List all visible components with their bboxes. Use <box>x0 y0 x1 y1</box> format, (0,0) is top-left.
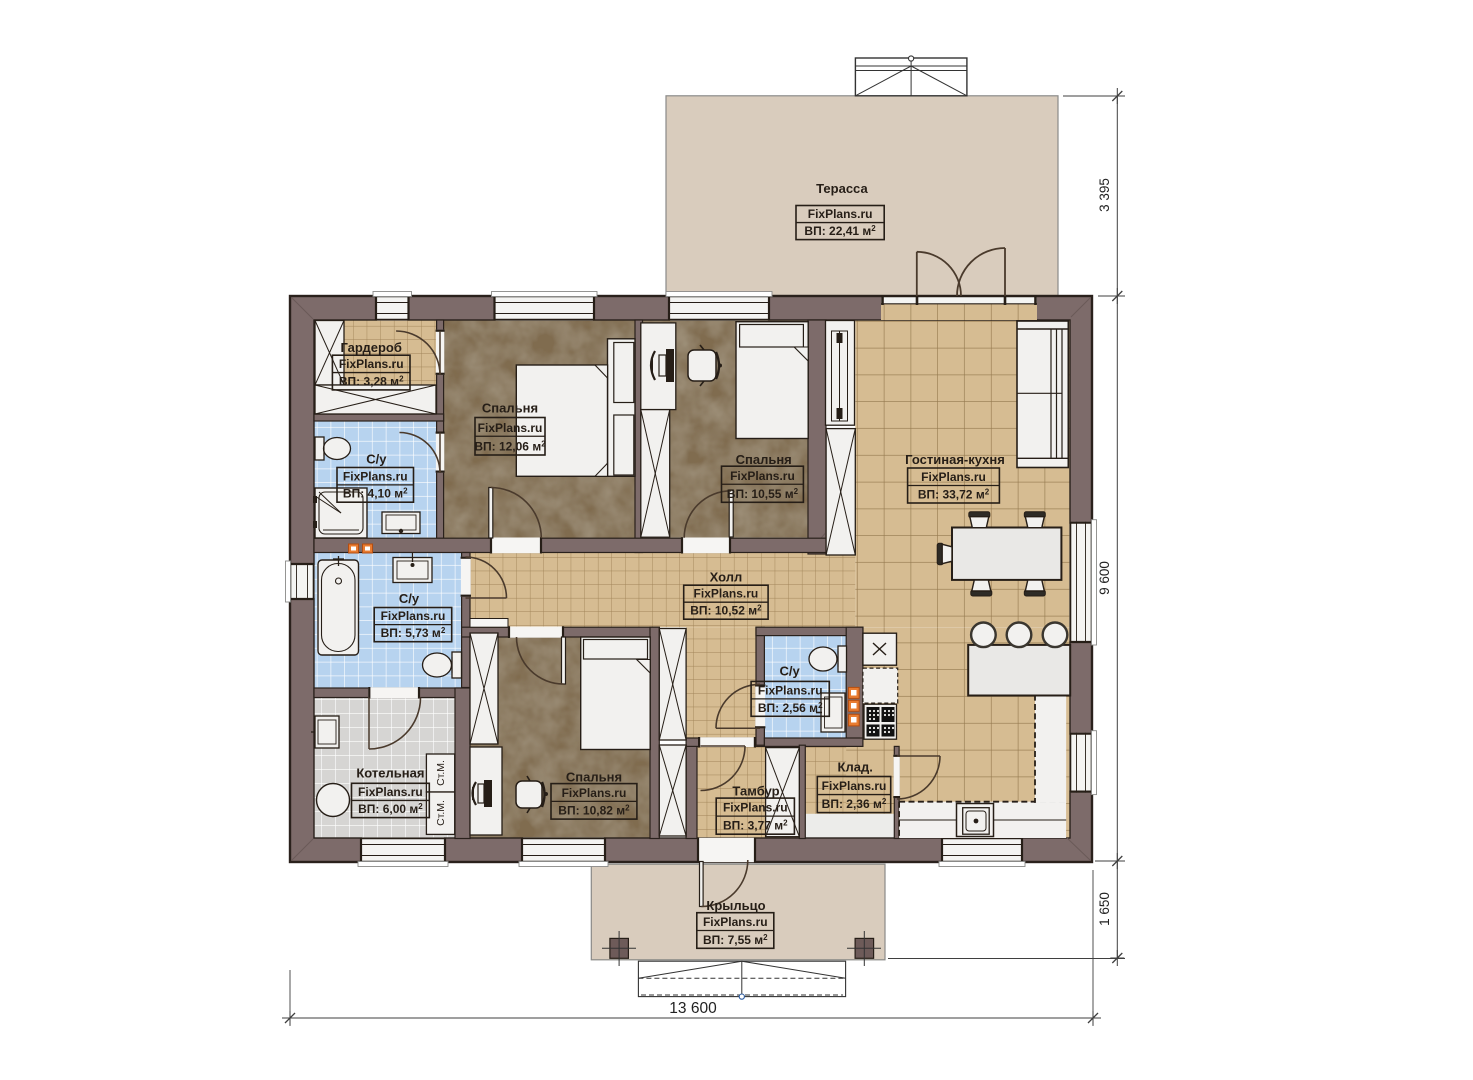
svg-text:Ст.М.: Ст.М. <box>435 800 447 826</box>
svg-text:ВП: 10,52 м2: ВП: 10,52 м2 <box>690 604 762 618</box>
svg-text:FixPlans.ru: FixPlans.ru <box>921 470 986 484</box>
svg-text:Холл: Холл <box>710 570 743 585</box>
svg-text:ВП: 2,56 м2: ВП: 2,56 м2 <box>758 701 823 715</box>
svg-text:1 650: 1 650 <box>1097 892 1112 926</box>
svg-text:FixPlans.ru: FixPlans.ru <box>730 469 795 483</box>
svg-text:С/у: С/у <box>779 664 800 679</box>
svg-text:ВП: 5,73 м2: ВП: 5,73 м2 <box>381 626 446 640</box>
svg-text:Спальня: Спальня <box>736 452 792 467</box>
svg-text:9 600: 9 600 <box>1097 561 1112 595</box>
svg-text:Крыльцо: Крыльцо <box>706 898 765 913</box>
svg-text:С/у: С/у <box>399 591 420 606</box>
svg-text:FixPlans.ru: FixPlans.ru <box>562 786 627 800</box>
svg-text:FixPlans.ru: FixPlans.ru <box>694 587 759 601</box>
svg-text:Гостиная-кухня: Гостиная-кухня <box>905 452 1005 467</box>
svg-text:ВП: 33,72 м2: ВП: 33,72 м2 <box>918 488 990 502</box>
svg-text:3 395: 3 395 <box>1097 178 1112 212</box>
svg-text:FixPlans.ru: FixPlans.ru <box>478 421 543 435</box>
svg-text:Спальня: Спальня <box>482 401 538 416</box>
svg-text:FixPlans.ru: FixPlans.ru <box>703 915 768 929</box>
svg-text:ВП: 2,36 м2: ВП: 2,36 м2 <box>822 797 887 811</box>
svg-text:FixPlans.ru: FixPlans.ru <box>343 469 408 483</box>
svg-text:FixPlans.ru: FixPlans.ru <box>358 785 423 799</box>
svg-text:ВП: 4,10 м2: ВП: 4,10 м2 <box>343 487 408 501</box>
svg-text:ВП: 7,55 м2: ВП: 7,55 м2 <box>703 933 768 947</box>
svg-text:Котельная: Котельная <box>356 766 424 781</box>
svg-text:ВП: 6,00 м2: ВП: 6,00 м2 <box>358 802 423 816</box>
svg-text:ВП: 3,28 м2: ВП: 3,28 м2 <box>339 374 404 388</box>
svg-text:Спальня: Спальня <box>566 769 622 784</box>
svg-text:Клад.: Клад. <box>838 759 873 774</box>
svg-text:ВП: 10,82 м2: ВП: 10,82 м2 <box>558 804 630 818</box>
svg-text:FixPlans.ru: FixPlans.ru <box>822 779 887 793</box>
svg-text:FixPlans.ru: FixPlans.ru <box>381 609 446 623</box>
svg-text:FixPlans.ru: FixPlans.ru <box>808 207 873 221</box>
svg-text:ВП: 3,77 м2: ВП: 3,77 м2 <box>723 819 788 833</box>
svg-text:ВП: 10,55 м2: ВП: 10,55 м2 <box>727 487 799 501</box>
svg-text:Тамбур: Тамбур <box>732 783 779 798</box>
svg-text:FixPlans.ru: FixPlans.ru <box>723 801 788 815</box>
svg-text:FixPlans.ru: FixPlans.ru <box>339 357 404 371</box>
svg-text:Гардероб: Гардероб <box>340 340 401 355</box>
svg-text:Ст.М.: Ст.М. <box>435 760 447 786</box>
svg-text:Терасса: Терасса <box>816 181 868 196</box>
svg-text:13 600: 13 600 <box>669 1000 717 1017</box>
svg-text:ВП: 22,41 м2: ВП: 22,41 м2 <box>804 224 876 238</box>
svg-text:С/у: С/у <box>366 451 387 466</box>
svg-text:FixPlans.ru: FixPlans.ru <box>758 683 823 697</box>
svg-text:ВП: 12,06 м2: ВП: 12,06 м2 <box>474 440 546 454</box>
